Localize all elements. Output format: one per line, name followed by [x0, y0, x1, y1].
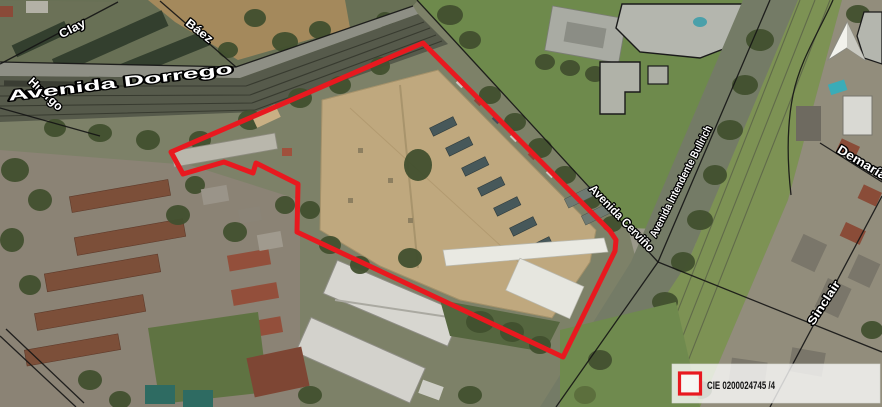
- legend-code-label: CIE 0200024745 /4: [707, 380, 776, 392]
- legend: CIE 0200024745 /4: [672, 364, 880, 403]
- legend-parcel-swatch: [680, 373, 701, 394]
- satellite-map-screenshot: Clay Báez Huergo Avenida Dorrego Avenida…: [0, 0, 882, 407]
- legend-box: [672, 364, 880, 403]
- aerial-map: Clay Báez Huergo Avenida Dorrego Avenida…: [0, 0, 882, 407]
